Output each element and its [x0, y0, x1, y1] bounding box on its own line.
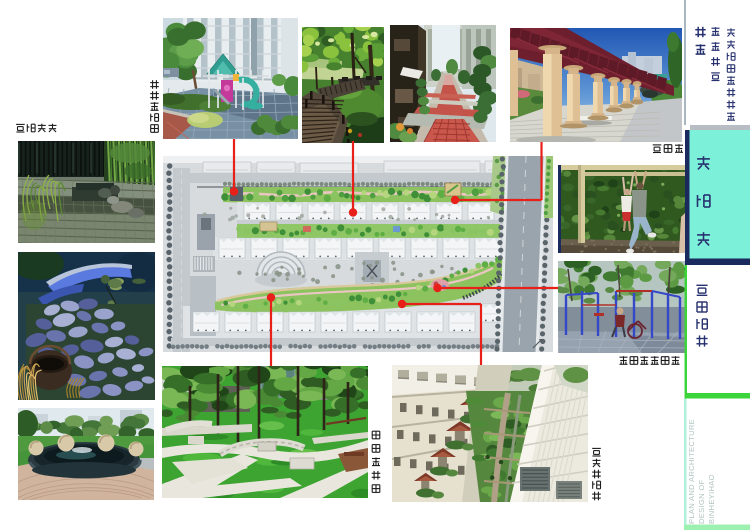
svg-text:DESIGN OF: DESIGN OF: [697, 479, 706, 524]
svg-text:BINHEYIHAO: BINHEYIHAO: [707, 474, 716, 524]
svg-text:PLAN AND ARCHITECTURE: PLAN AND ARCHITECTURE: [687, 419, 696, 524]
